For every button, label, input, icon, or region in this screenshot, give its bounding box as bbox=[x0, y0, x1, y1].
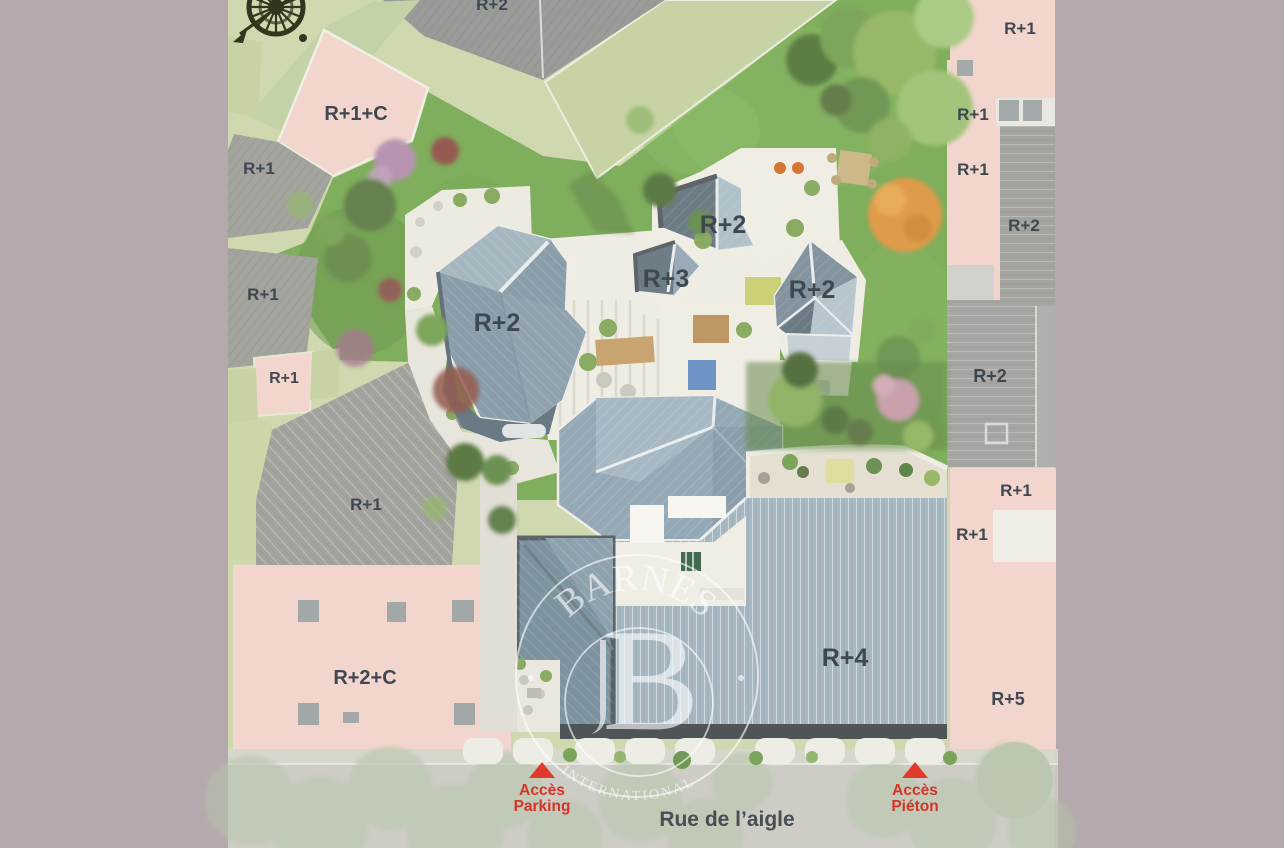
svg-text:R+2: R+2 bbox=[700, 211, 747, 239]
svg-text:R+4: R+4 bbox=[822, 644, 869, 672]
svg-text:R+1: R+1 bbox=[956, 525, 988, 544]
svg-text:Accès: Accès bbox=[892, 782, 938, 799]
svg-text:R+1: R+1 bbox=[1004, 19, 1036, 38]
svg-text:R+1: R+1 bbox=[350, 495, 382, 514]
svg-text:R+2: R+2 bbox=[476, 0, 508, 14]
svg-text:Accès: Accès bbox=[519, 782, 565, 799]
svg-text:R+2: R+2 bbox=[474, 309, 521, 337]
svg-text:R+2+C: R+2+C bbox=[333, 667, 396, 689]
svg-text:B: B bbox=[602, 599, 699, 761]
svg-text:R+1: R+1 bbox=[243, 159, 275, 178]
svg-text:R+1: R+1 bbox=[957, 105, 989, 124]
svg-text:Piéton: Piéton bbox=[891, 798, 938, 815]
svg-text:R+1: R+1 bbox=[269, 370, 299, 387]
svg-text:R+1: R+1 bbox=[957, 160, 989, 179]
svg-text:R+2: R+2 bbox=[1008, 216, 1040, 235]
svg-text:R+2: R+2 bbox=[973, 366, 1007, 386]
svg-text:Parking: Parking bbox=[514, 798, 571, 815]
svg-text:R+1+C: R+1+C bbox=[324, 103, 387, 125]
svg-text:R+1: R+1 bbox=[1000, 481, 1032, 500]
svg-text:R+3: R+3 bbox=[643, 265, 690, 293]
svg-text:Rue de l’aigle: Rue de l’aigle bbox=[659, 808, 794, 831]
svg-text:R+2: R+2 bbox=[789, 276, 836, 304]
svg-text:R+1: R+1 bbox=[247, 285, 279, 304]
svg-text:R+5: R+5 bbox=[991, 689, 1025, 709]
